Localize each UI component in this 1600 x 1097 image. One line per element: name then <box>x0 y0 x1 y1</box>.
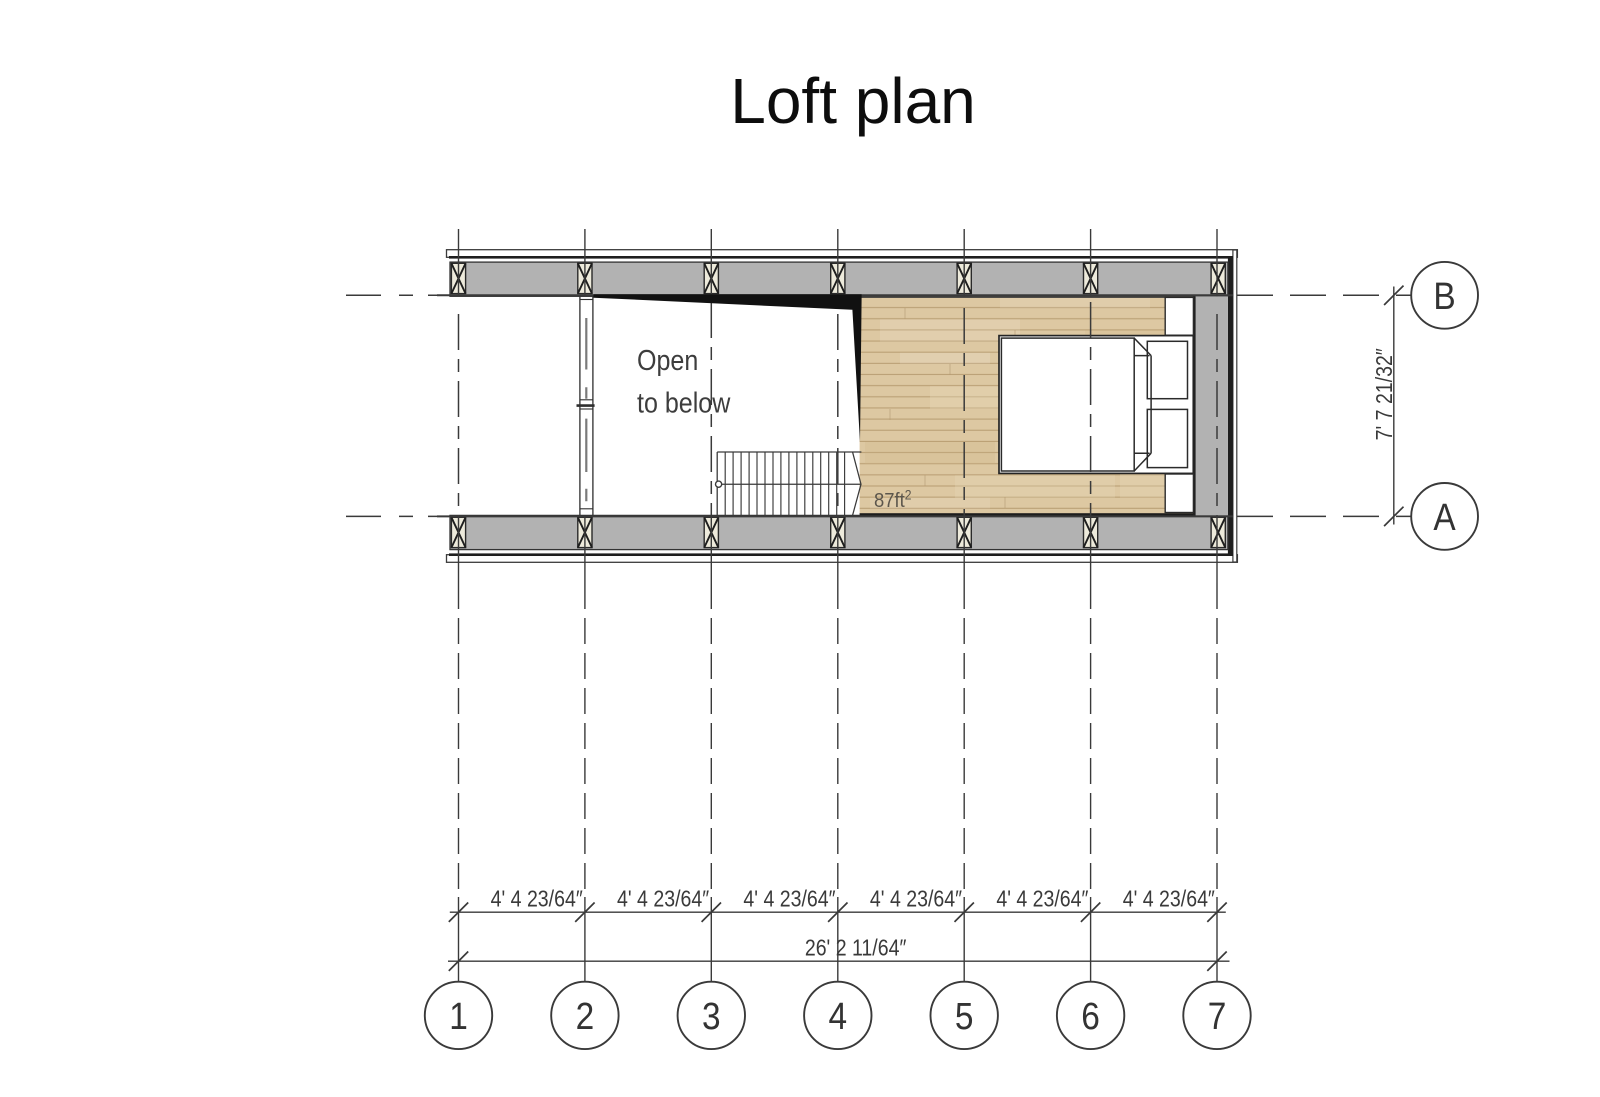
svg-text:4' 4 23/64″: 4' 4 23/64″ <box>743 886 836 912</box>
svg-text:3: 3 <box>702 995 721 1037</box>
svg-text:A: A <box>1433 496 1455 538</box>
svg-text:to below: to below <box>637 387 731 419</box>
svg-text:B: B <box>1433 275 1455 317</box>
svg-text:4' 4 23/64″: 4' 4 23/64″ <box>1123 886 1216 912</box>
svg-text:1: 1 <box>449 995 468 1037</box>
svg-text:5: 5 <box>955 995 974 1037</box>
svg-text:6: 6 <box>1081 995 1100 1037</box>
svg-text:26' 2 11/64″: 26' 2 11/64″ <box>805 935 907 961</box>
svg-text:7: 7 <box>1208 995 1227 1037</box>
svg-text:4' 4 23/64″: 4' 4 23/64″ <box>870 886 963 912</box>
svg-text:4' 4 23/64″: 4' 4 23/64″ <box>491 886 584 912</box>
svg-text:7' 7 21/32″: 7' 7 21/32″ <box>1372 348 1398 441</box>
svg-text:Loft plan: Loft plan <box>730 65 976 137</box>
svg-text:4' 4 23/64″: 4' 4 23/64″ <box>996 886 1089 912</box>
svg-text:4' 4 23/64″: 4' 4 23/64″ <box>617 886 710 912</box>
svg-text:Open: Open <box>637 345 698 377</box>
svg-text:4: 4 <box>829 995 848 1037</box>
svg-text:2: 2 <box>576 995 595 1037</box>
